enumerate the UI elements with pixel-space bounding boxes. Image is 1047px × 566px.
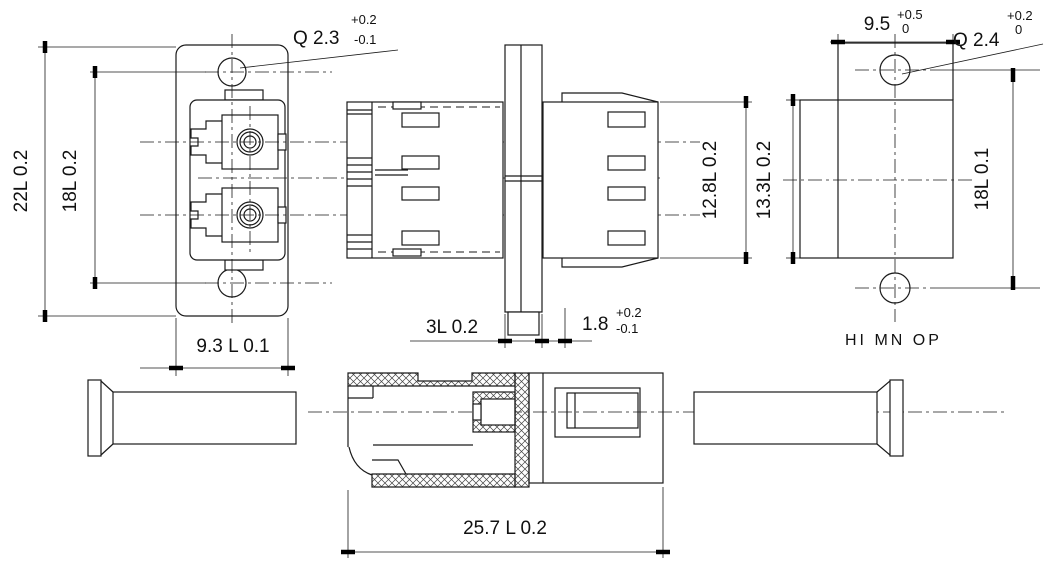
dim-rear-hole-dia-lower: 0 — [1015, 22, 1022, 37]
dim-body-height-label: 12.8L 0.2 — [700, 141, 721, 220]
dim-front-height-label: 22L 0.2 — [11, 150, 32, 213]
side-window-1 — [608, 112, 645, 127]
cap-left-body — [113, 392, 296, 444]
side-slot-4 — [402, 231, 439, 245]
dust-cap-left — [88, 380, 296, 456]
dim-rear-top-width-lower: 0 — [902, 21, 909, 36]
section-inner-step — [372, 460, 406, 474]
side-view — [347, 45, 658, 335]
dim-rear-top-width-upper: +0.5 — [897, 7, 923, 22]
section-top-wall — [348, 373, 515, 386]
dim-front-width: 9.3 L 0.1 — [140, 318, 295, 376]
section-right-cavity-inner — [567, 393, 638, 428]
dim-front-hole-dia-main: Q 2.3 — [293, 28, 339, 49]
side-bottom-tab — [393, 249, 421, 256]
dim-flange-thickness-label: 3L 0.2 — [426, 317, 478, 338]
dim-overall-length: 25.7 L 0.2 — [341, 487, 670, 558]
dim-flange-offset-upper: +0.2 — [616, 305, 642, 320]
dim-rear-body-height-label: 13.3L 0.2 — [754, 141, 775, 220]
section-latch-curve — [349, 447, 372, 475]
cap-right-body — [694, 392, 877, 444]
rear-main-body — [800, 100, 953, 258]
cap-left-flange — [88, 380, 101, 456]
side-flange-foot — [508, 312, 539, 335]
dim-front-hole-dia-upper: +0.2 — [351, 12, 377, 27]
rear-view — [783, 34, 972, 322]
section-bottom-wall — [372, 474, 515, 487]
front-bottom-tab — [225, 260, 263, 270]
side-right-top-latch — [562, 93, 658, 102]
side-top-tab — [393, 102, 421, 109]
dim-front-width-label: 9.3 L 0.1 — [196, 336, 269, 357]
section-sleeve-bore — [481, 399, 515, 425]
dim-body-height: 12.8L 0.2 — [660, 96, 752, 264]
section-sleeve-face — [473, 404, 481, 420]
side-window-3 — [608, 187, 645, 200]
engineering-drawing-canvas: 22L 0.2 18L 0.2 9.3 L 0.1 Q 2.3 +0.2 -0.… — [0, 0, 1047, 566]
side-right-bottom-latch — [562, 258, 658, 267]
dim-overall-length-label: 25.7 L 0.2 — [463, 518, 547, 539]
dim-rear-hole-dia: Q 2.4 +0.2 0 — [902, 8, 1043, 74]
dim-rear-hole-spacing-label: 18L 0.1 — [972, 148, 993, 211]
dim-flange-offset-main: 1.8 — [582, 314, 608, 335]
side-window-2 — [608, 156, 645, 170]
rear-note-label: HI MN OP — [845, 332, 942, 349]
dim-front-hole-spacing-label: 18L 0.2 — [60, 150, 81, 213]
side-slot-2 — [402, 156, 439, 169]
front-top-tab — [225, 90, 263, 100]
dust-cap-right — [694, 380, 903, 456]
fiber-adapter-drawing: 22L 0.2 18L 0.2 9.3 L 0.1 Q 2.3 +0.2 -0.… — [0, 0, 1047, 566]
section-right-cavity — [555, 388, 640, 437]
side-slot-1 — [402, 113, 439, 127]
side-flange — [505, 45, 542, 312]
side-window-4 — [608, 231, 645, 245]
cap-right-flange — [890, 380, 903, 456]
dim-flange-offset: 1.8 +0.2 -0.1 — [582, 305, 642, 336]
section-view — [348, 373, 663, 487]
side-slot-3 — [402, 187, 439, 200]
dim-front-hole-dia-lower: -0.1 — [354, 32, 376, 47]
dim-rear-hole-dia-main: Q 2.4 — [953, 30, 1000, 51]
dim-rear-top-width-main: 9.5 — [864, 14, 890, 35]
dim-flange-thickness: 3L 0.2 — [410, 308, 592, 348]
section-flange-wall — [515, 373, 529, 487]
dim-rear-body-height: 13.3L 0.2 — [754, 94, 800, 264]
dim-flange-offset-lower: -0.1 — [616, 321, 638, 336]
dim-rear-hole-dia-upper: +0.2 — [1007, 8, 1033, 23]
